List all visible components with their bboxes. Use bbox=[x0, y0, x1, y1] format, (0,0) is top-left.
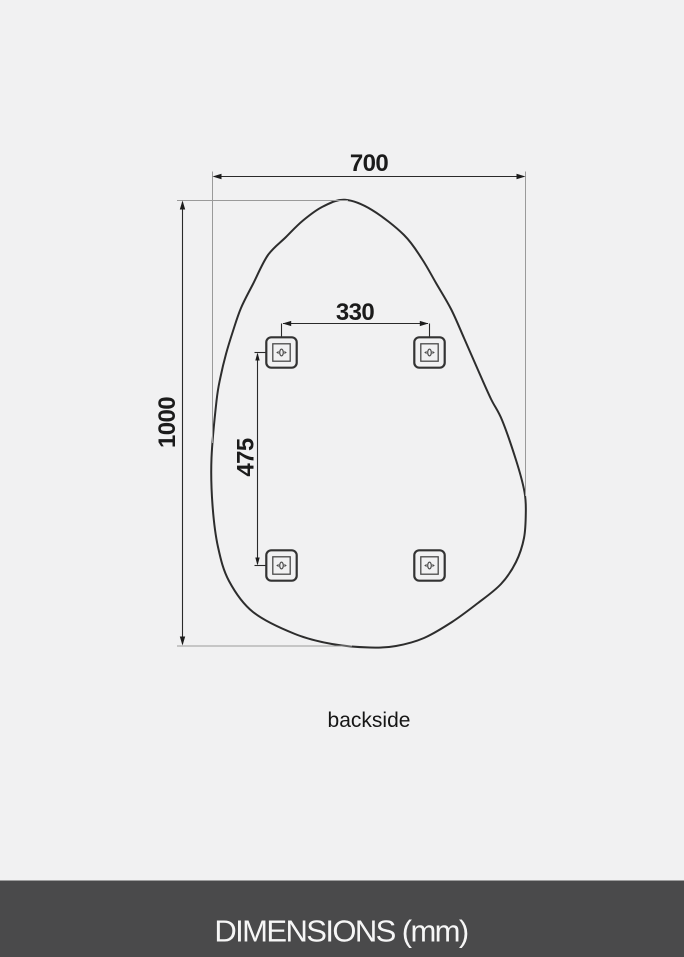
svg-text:475: 475 bbox=[233, 438, 260, 476]
svg-text:DIMENSIONS (mm): DIMENSIONS (mm) bbox=[214, 914, 468, 949]
svg-text:backside: backside bbox=[328, 709, 411, 732]
svg-text:1000: 1000 bbox=[154, 397, 181, 448]
svg-text:330: 330 bbox=[336, 299, 374, 326]
svg-text:700: 700 bbox=[350, 150, 388, 177]
